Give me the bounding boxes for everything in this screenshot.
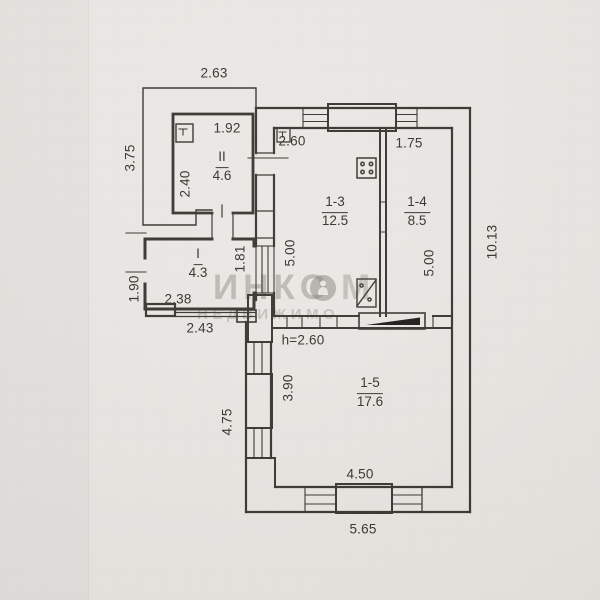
room-label-II: II 4.6 [213,149,232,185]
dim-east-wall: 10.13 [485,225,500,260]
dim-south-wall: 5.65 [349,522,376,537]
ceiling-height-note: h=2.60 [282,333,325,348]
dim-room15-west-outer: 4.75 [220,408,235,435]
annex-outline [143,88,256,225]
dim-room15-bottom: 4.50 [346,467,373,482]
dim-room15-west-inner: 3.90 [281,374,296,401]
east-wall [452,108,470,512]
room-label-1-3: 1-3 12.5 [322,194,348,230]
dim-room13-depth: 5.00 [283,239,298,266]
chimney-icon [357,279,376,307]
room-label-I: I 4.3 [189,246,208,282]
dim-room2-width: 1.92 [213,121,240,136]
west-wall-pier [246,374,272,428]
north-wall [256,108,470,128]
west-wall-lower [246,322,271,512]
dim-west-offset: 1.90 [127,275,142,302]
window-symbol-west-2 [246,428,271,458]
dim-hall-bottom: 2.43 [186,321,213,336]
window-symbol-north-1 [303,108,328,128]
window-symbol-north-2 [396,108,417,128]
window-symbol-south-1 [305,487,336,512]
dim-room13-top: 2.60 [278,134,305,149]
room-label-1-4: 1-4 8.5 [404,194,430,230]
scanned-floor-plan-page: ИНКО М НЕДВИЖИМО [0,0,600,600]
dim-room14-top: 1.75 [395,136,422,151]
room-I-door-ticks [126,233,146,272]
sw-corner-block [246,458,275,487]
dim-annex-top: 2.63 [200,66,227,81]
south-wall-pier [336,484,392,513]
window-symbol-west-1 [246,342,271,374]
window-symbol-south-2 [392,487,422,512]
partition-13-14 [380,128,386,316]
flue-icon [176,124,193,142]
room-label-1-5: 1-5 17.6 [357,375,383,411]
room-II-door-jambs [212,205,233,237]
stairs-wedge-icon [366,318,420,326]
dim-annex-west: 3.75 [123,144,138,171]
floor-plan-drawing [0,0,600,600]
window-symbol-west-upper [256,246,274,293]
porch-step-lines [175,313,256,317]
dim-room14-depth: 5.00 [422,249,437,276]
dim-room2-depth: 2.40 [178,170,193,197]
south-wall [246,487,470,512]
dim-hall-width: 2.38 [164,292,191,307]
stove-icon [357,158,376,178]
stairs-symbol [359,313,425,329]
dim-hall-right: 1.81 [233,245,248,272]
west-wall-upper [256,108,274,316]
